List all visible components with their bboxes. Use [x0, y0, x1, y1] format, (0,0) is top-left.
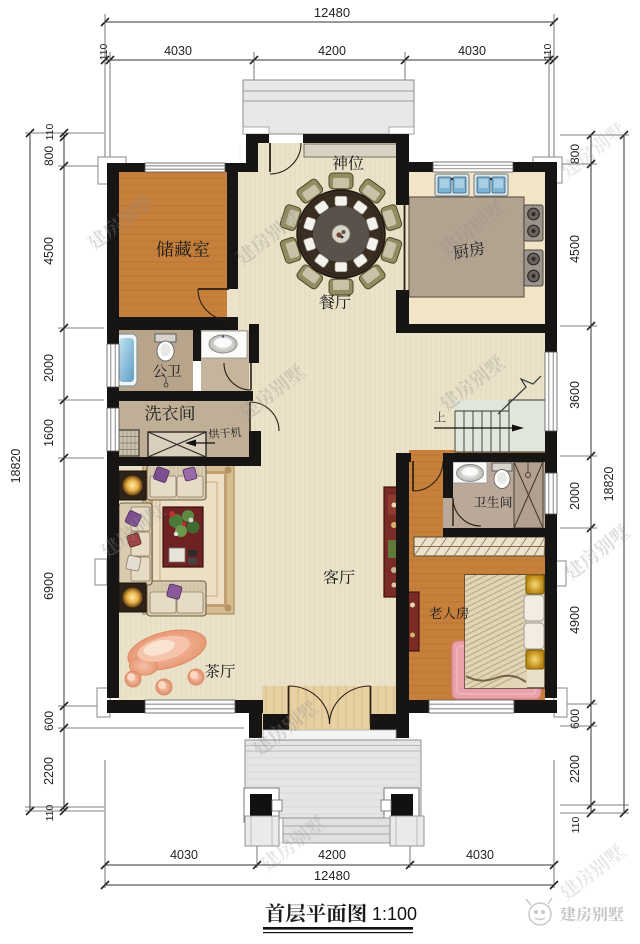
svg-text:2000: 2000 [568, 482, 582, 510]
svg-text:4030: 4030 [170, 848, 198, 862]
svg-text:600: 600 [42, 711, 56, 731]
svg-text:4030: 4030 [164, 44, 192, 58]
svg-text:4030: 4030 [466, 848, 494, 862]
svg-text:110: 110 [542, 43, 554, 60]
svg-text:4200: 4200 [318, 44, 346, 58]
svg-text:6900: 6900 [42, 572, 56, 600]
svg-text:2200: 2200 [42, 757, 56, 785]
svg-text:800: 800 [42, 146, 56, 166]
svg-text:18820: 18820 [602, 467, 616, 502]
svg-text:4500: 4500 [42, 237, 56, 265]
svg-text:4900: 4900 [568, 606, 582, 634]
svg-text:1:100: 1:100 [372, 904, 417, 924]
svg-text:110: 110 [44, 123, 56, 140]
svg-text:2200: 2200 [568, 755, 582, 783]
svg-text:4030: 4030 [458, 44, 486, 58]
svg-text:18820: 18820 [9, 449, 23, 484]
svg-text:800: 800 [568, 144, 582, 164]
svg-text:3600: 3600 [568, 381, 582, 409]
svg-text:110: 110 [98, 43, 110, 60]
svg-text:12480: 12480 [314, 5, 350, 20]
svg-text:12480: 12480 [314, 868, 350, 883]
svg-text:4200: 4200 [318, 848, 346, 862]
svg-text:2000: 2000 [42, 354, 56, 382]
svg-text:4500: 4500 [568, 235, 582, 263]
svg-text:110: 110 [570, 816, 582, 833]
svg-text:1600: 1600 [42, 419, 56, 447]
